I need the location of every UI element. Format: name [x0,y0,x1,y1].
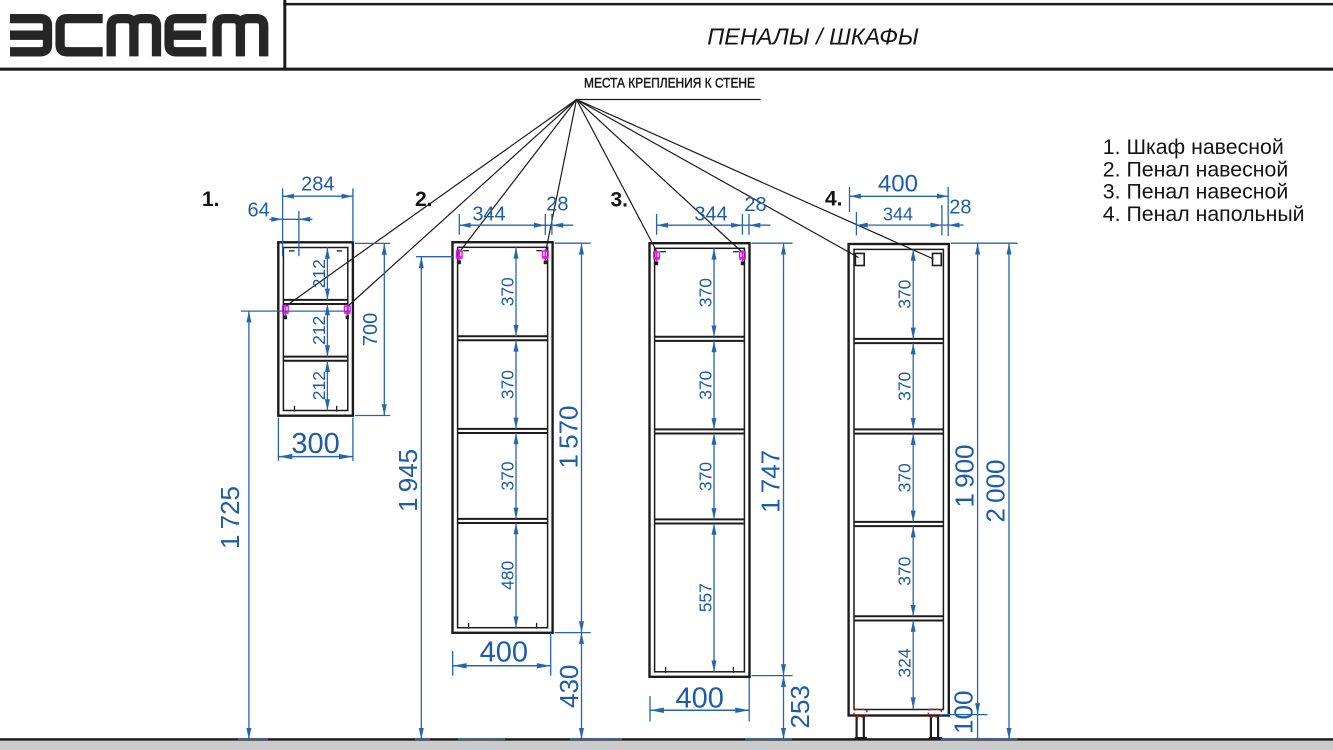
svg-text:1 725: 1 725 [215,486,245,549]
svg-text:370: 370 [696,370,716,399]
svg-text:370: 370 [498,370,518,399]
svg-text:370: 370 [895,556,915,585]
svg-text:324: 324 [895,648,915,677]
svg-text:370: 370 [498,461,518,490]
svg-text:212: 212 [309,316,329,345]
svg-text:284: 284 [301,174,334,196]
svg-text:28: 28 [546,193,568,215]
svg-text:370: 370 [696,278,716,307]
svg-text:344: 344 [472,204,505,226]
svg-text:253: 253 [785,685,815,728]
svg-text:3. Пенал навесной: 3. Пенал навесной [1103,180,1288,204]
svg-text:1 747: 1 747 [756,450,786,513]
svg-text:1.: 1. [202,188,220,211]
svg-text:430: 430 [554,665,584,708]
svg-text:400: 400 [878,171,918,198]
svg-text:700: 700 [360,313,382,346]
svg-text:370: 370 [696,462,716,491]
svg-text:370: 370 [895,463,915,492]
svg-text:ПЕНАЛЫ / ШКАФЫ: ПЕНАЛЫ / ШКАФЫ [707,23,919,49]
svg-text:557: 557 [696,583,716,612]
svg-text:344: 344 [883,205,913,225]
svg-text:212: 212 [309,259,329,288]
svg-text:28: 28 [744,194,766,216]
svg-text:МЕСТА КРЕПЛЕНИЯ К СТЕНЕ: МЕСТА КРЕПЛЕНИЯ К СТЕНЕ [584,75,755,90]
svg-text:4.: 4. [825,188,843,211]
svg-text:2.: 2. [415,188,433,211]
svg-text:1. Шкаф навесной: 1. Шкаф навесной [1103,135,1284,159]
svg-text:1 900: 1 900 [950,444,980,507]
svg-text:212: 212 [309,371,329,400]
svg-text:1 570: 1 570 [554,405,584,468]
svg-text:370: 370 [895,371,915,400]
svg-text:370: 370 [498,277,518,306]
svg-text:4. Пенал напольный: 4. Пенал напольный [1103,202,1305,226]
svg-text:3.: 3. [611,188,629,211]
svg-text:300: 300 [291,428,339,460]
svg-text:100: 100 [949,691,979,734]
svg-text:344: 344 [694,204,727,226]
svg-text:400: 400 [480,637,528,669]
svg-text:28: 28 [949,197,971,219]
svg-text:2 000: 2 000 [981,459,1011,522]
svg-text:400: 400 [676,683,724,715]
svg-text:64: 64 [247,199,269,221]
svg-text:480: 480 [498,561,518,590]
svg-text:2. Пенал навесной: 2. Пенал навесной [1103,157,1288,181]
svg-text:1 945: 1 945 [393,449,423,512]
svg-text:370: 370 [895,279,915,308]
